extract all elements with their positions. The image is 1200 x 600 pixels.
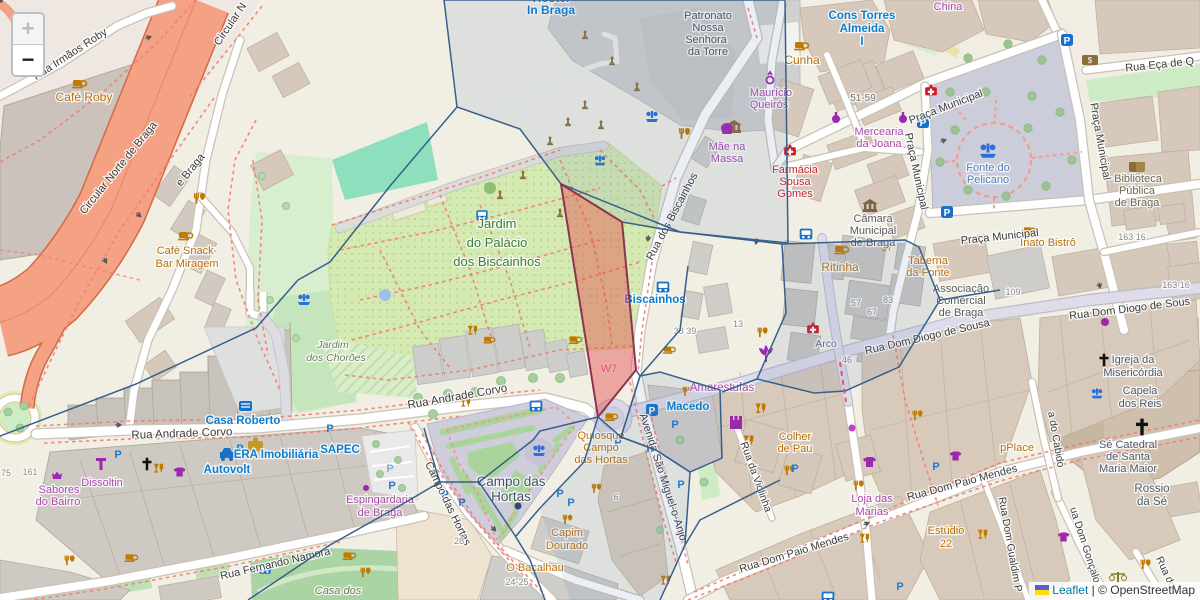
svg-text:Inato Bistrô: Inato Bistrô — [1020, 237, 1076, 249]
svg-text:Loja das: Loja das — [851, 493, 893, 505]
svg-text:Maria Maior: Maria Maior — [1099, 463, 1157, 475]
svg-text:22: 22 — [940, 538, 952, 550]
svg-text:Almeida: Almeida — [840, 23, 885, 35]
svg-text:Jardim: Jardim — [477, 216, 516, 231]
svg-text:Café Snack-: Café Snack- — [157, 245, 218, 257]
svg-text:P: P — [388, 480, 395, 492]
svg-text:Sabores: Sabores — [39, 484, 80, 496]
svg-text:pPlace: pPlace — [1000, 442, 1034, 454]
svg-text:Fonte do: Fonte do — [966, 162, 1009, 174]
svg-text:Jardim: Jardim — [316, 339, 349, 351]
svg-text:Biscainhos: Biscainhos — [624, 294, 685, 306]
svg-text:P: P — [458, 497, 465, 509]
svg-text:Cons Torres: Cons Torres — [829, 10, 896, 22]
svg-text:do Bairro: do Bairro — [36, 496, 81, 508]
svg-text:da Sé: da Sé — [1137, 496, 1167, 508]
svg-text:Colher: Colher — [779, 431, 812, 443]
svg-text:163 16: 163 16 — [1118, 232, 1146, 242]
svg-text:Bar Miragem: Bar Miragem — [156, 258, 219, 270]
svg-text:P: P — [791, 463, 798, 475]
svg-text:Biblioteca: Biblioteca — [1114, 173, 1163, 185]
svg-text:Estúdio: Estúdio — [928, 525, 965, 537]
svg-text:Café Roby: Café Roby — [56, 90, 113, 104]
svg-text:de Santa: de Santa — [1106, 451, 1151, 463]
svg-text:P: P — [114, 449, 121, 461]
svg-text:Capela: Capela — [1123, 385, 1159, 397]
svg-text:75: 75 — [1, 468, 11, 478]
svg-text:de Braga: de Braga — [939, 307, 985, 319]
svg-text:Hortas: Hortas — [491, 489, 531, 504]
svg-text:Pública: Pública — [1119, 185, 1156, 197]
svg-text:Espingardaria: Espingardaria — [346, 494, 415, 506]
svg-text:P: P — [932, 461, 939, 473]
svg-text:13: 13 — [733, 319, 743, 329]
svg-text:161: 161 — [22, 467, 37, 477]
svg-text:P: P — [896, 581, 903, 593]
svg-text:do Palácio: do Palácio — [467, 235, 528, 250]
svg-text:ERA Imobiliária: ERA Imobiliária — [234, 449, 319, 461]
svg-text:Autovolt: Autovolt — [204, 464, 251, 476]
svg-text:Misericórdia: Misericórdia — [1103, 367, 1163, 379]
svg-text:P: P — [386, 463, 393, 475]
svg-text:P: P — [944, 208, 951, 219]
svg-text:109: 109 — [1005, 287, 1020, 297]
svg-text:51-59: 51-59 — [850, 93, 876, 104]
svg-text:Câmara: Câmara — [853, 213, 893, 225]
svg-text:dos Biscainhos: dos Biscainhos — [453, 254, 541, 269]
svg-text:Rossio: Rossio — [1134, 483, 1169, 495]
svg-text:P: P — [326, 423, 333, 435]
svg-text:163 16: 163 16 — [1162, 280, 1190, 290]
svg-text:$: $ — [1088, 56, 1093, 65]
svg-text:Mercearia: Mercearia — [855, 126, 905, 138]
svg-text:da Joana: da Joana — [856, 138, 902, 150]
svg-text:Dissoltin: Dissoltin — [81, 477, 123, 489]
svg-text:dos Reis: dos Reis — [1119, 398, 1162, 410]
svg-text:Cunha: Cunha — [784, 53, 820, 67]
svg-text:Casa dos: Casa dos — [315, 585, 362, 597]
svg-text:Municipal: Municipal — [850, 225, 896, 237]
svg-text:China: China — [934, 1, 964, 13]
svg-text:Marias: Marias — [855, 506, 889, 518]
svg-text:de Pau: de Pau — [778, 443, 813, 455]
svg-text:P: P — [1064, 36, 1071, 47]
svg-text:Sé Catedral: Sé Catedral — [1099, 439, 1157, 451]
svg-text:Igreja da: Igreja da — [1112, 354, 1156, 366]
svg-text:dos Chorões: dos Chorões — [306, 352, 366, 364]
svg-text:Casa Roberto: Casa Roberto — [206, 415, 281, 427]
svg-text:28: 28 — [454, 536, 464, 546]
svg-text:Pelicano: Pelicano — [967, 174, 1009, 186]
svg-text:de Braga: de Braga — [1115, 197, 1161, 209]
svg-text:I: I — [860, 36, 863, 48]
svg-text:38 39: 38 39 — [674, 326, 697, 336]
svg-text:24-25: 24-25 — [505, 577, 528, 587]
svg-text:SAPEC: SAPEC — [320, 444, 360, 456]
